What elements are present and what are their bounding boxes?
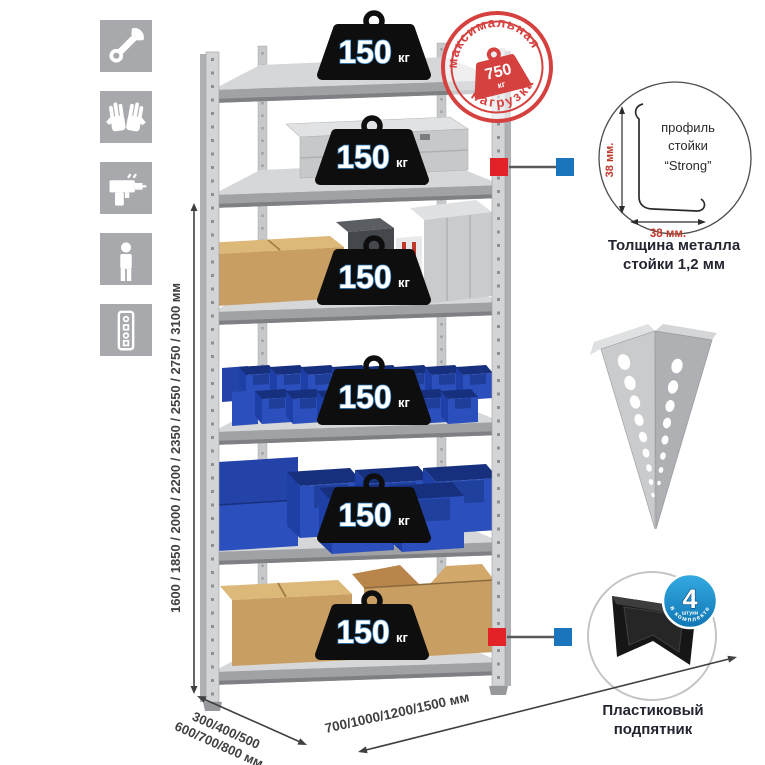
profile-dim-left: 38 мм. [604,143,616,178]
foot-caption: Пластиковый подпятник [572,701,734,739]
shelving-infographic: 1600 / 1850 / 2000 / 2200 / 2350 / 2550 … [0,0,765,765]
svg-text:кг: кг [396,630,409,645]
height-dimension: 1600 / 1850 / 2000 / 2200 / 2350 / 2550 … [168,203,198,694]
connector-blue-square [554,628,572,646]
connector-red-square [488,628,506,646]
svg-text:150: 150 [338,379,391,415]
angle-post-image [590,324,717,529]
svg-text:150: 150 [338,259,391,295]
profile-detail: 38 мм. 38 мм. профиль стойки “Strong” [599,82,751,240]
foot-detail: 4 штуки в комплекте [588,572,717,700]
depth-dimension: 300/400/500 600/700/800 мм [173,696,307,765]
svg-text:150: 150 [338,34,391,70]
svg-text:стойки: стойки [668,138,708,153]
svg-text:кг: кг [398,395,411,410]
svg-text:кг: кг [398,50,411,65]
svg-text:кг: кг [396,155,409,170]
svg-text:4: 4 [682,584,697,614]
svg-text:кг: кг [398,275,411,290]
max-load-stamp: максимальная нагрузка 750 кг [432,2,563,133]
svg-text:“Strong”: “Strong” [665,158,712,173]
connector-blue-square [556,158,574,176]
foot-connector [488,628,572,646]
profile-label: профиль [661,120,715,135]
profile-connector [490,158,574,176]
svg-text:150: 150 [336,139,389,175]
height-dimension-label: 1600 / 1850 / 2000 / 2200 / 2350 / 2550 … [168,283,183,613]
connector-red-square [490,158,508,176]
count-badge: 4 штуки в комплекте [663,574,717,628]
profile-caption: Толщина металла стойки 1,2 мм [586,236,762,274]
shelf-1-load-badge: 150 кг [322,13,426,75]
svg-text:150: 150 [338,497,391,533]
svg-text:кг: кг [398,513,411,528]
svg-text:150: 150 [336,614,389,650]
